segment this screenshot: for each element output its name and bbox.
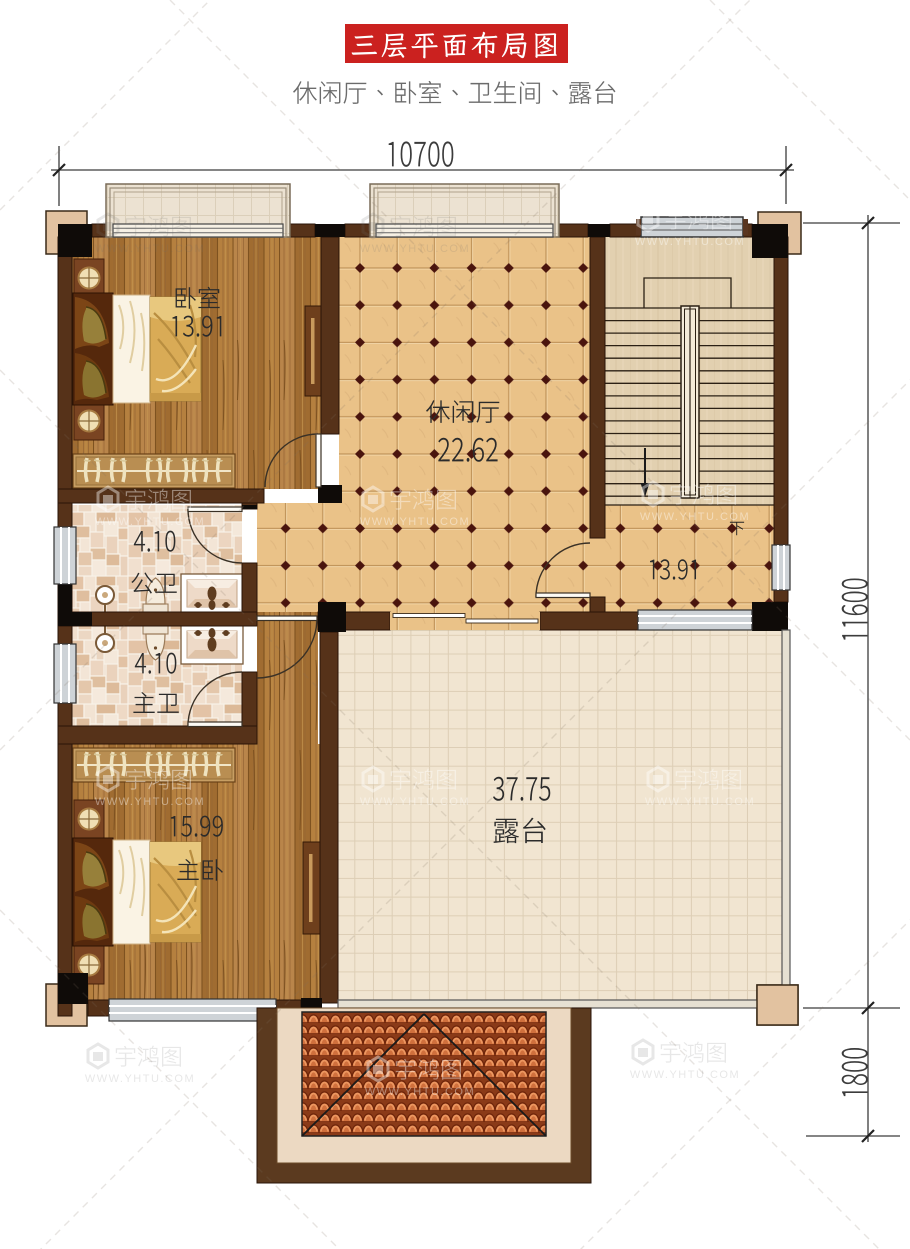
svg-text:WWW.YHTU.COM: WWW.YHTU.COM [360,243,470,255]
svg-text:WWW.YHTU.COM: WWW.YHTU.COM [645,796,755,808]
svg-text:WWW.YHTU.COM: WWW.YHTU.COM [365,1086,475,1098]
svg-text:WWW.YHTU.COM: WWW.YHTU.COM [95,796,205,808]
svg-text:WWW.YHTU.COM: WWW.YHTU.COM [85,1073,195,1085]
svg-text:WWW.YHTU.COM: WWW.YHTU.COM [95,243,205,255]
svg-text:WWW.YHTU.COM: WWW.YHTU.COM [630,1069,740,1081]
svg-text:WWW.YHTU.COM: WWW.YHTU.COM [360,516,470,528]
svg-text:WWW.YHTU.COM: WWW.YHTU.COM [360,796,470,808]
svg-text:WWW.YHTU.COM: WWW.YHTU.COM [635,236,745,248]
svg-text:WWW.YHTU.COM: WWW.YHTU.COM [95,516,205,528]
svg-text:WWW.YHTU.COM: WWW.YHTU.COM [640,511,750,523]
